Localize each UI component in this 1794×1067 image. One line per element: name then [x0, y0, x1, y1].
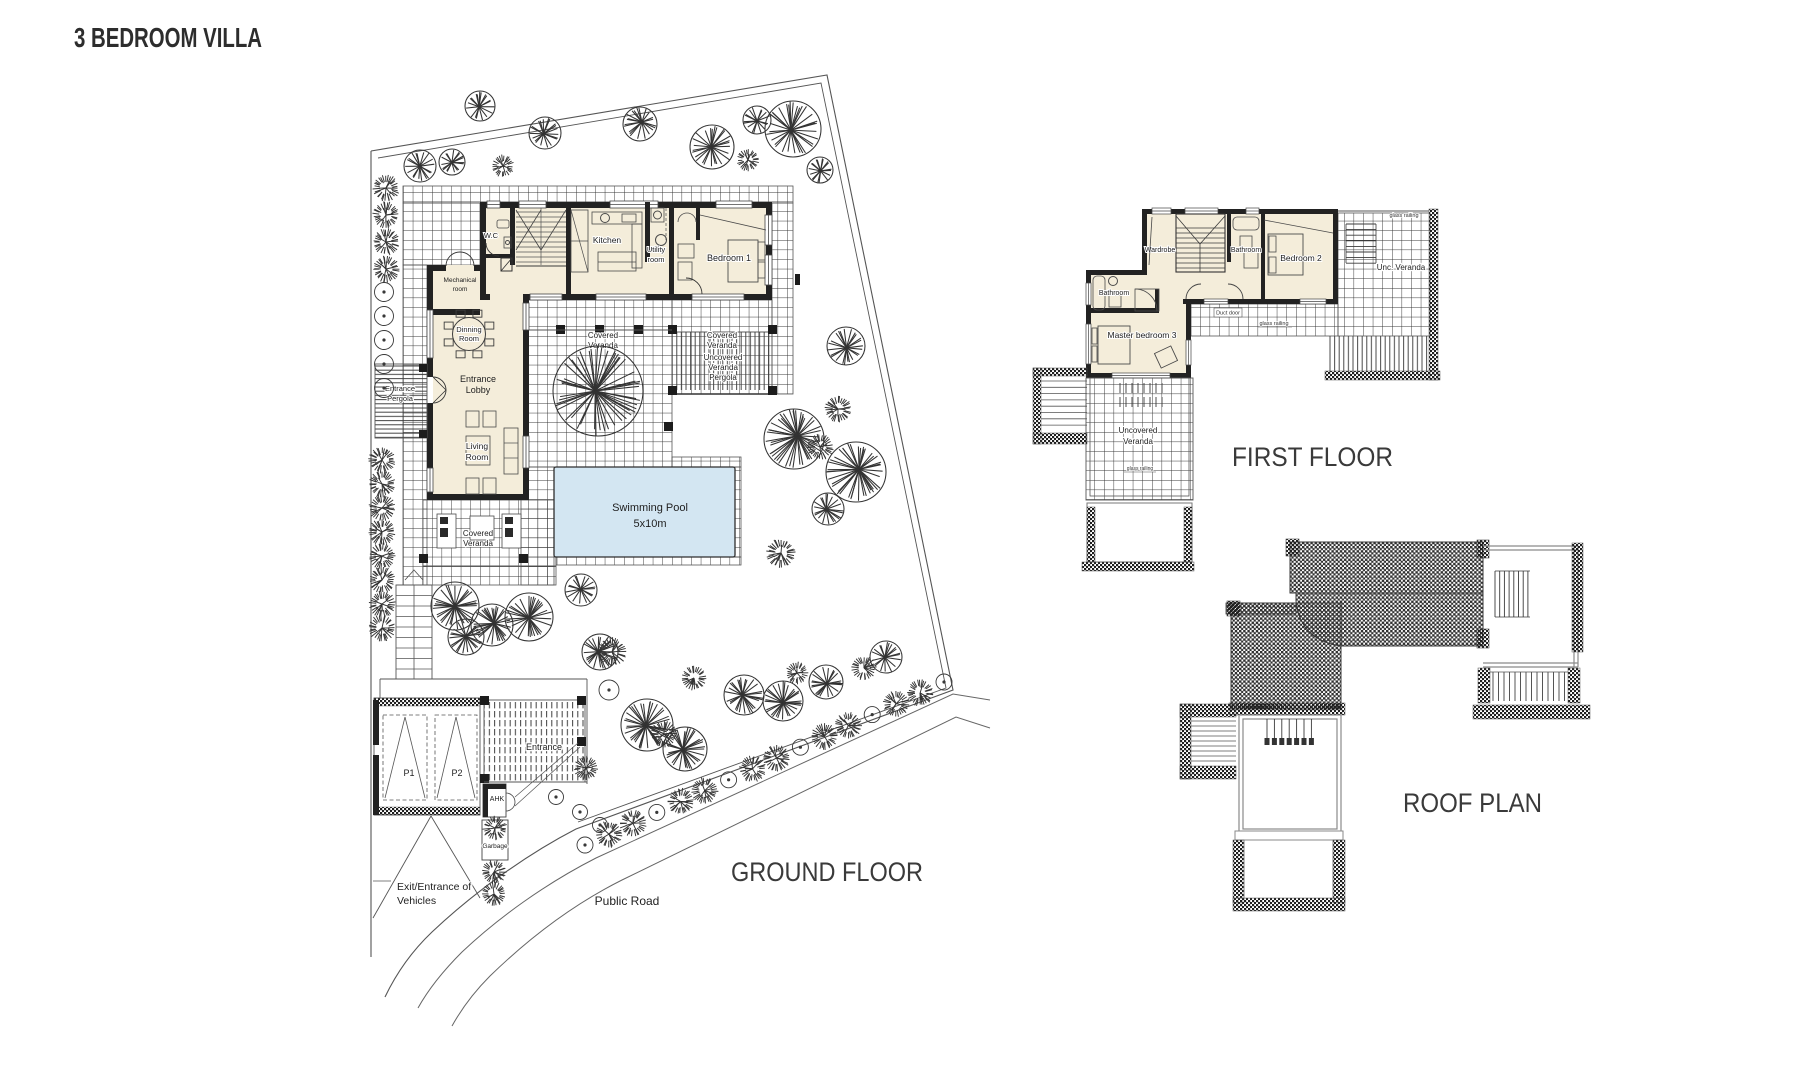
svg-text:Pergola: Pergola [387, 394, 414, 403]
svg-text:Uncovered: Uncovered [704, 353, 743, 362]
svg-text:Public Road: Public Road [595, 894, 660, 908]
svg-text:Utility: Utility [647, 245, 666, 254]
svg-text:Mechanical: Mechanical [444, 277, 477, 284]
svg-text:Veranda: Veranda [707, 341, 737, 350]
svg-text:Veranda: Veranda [463, 539, 493, 548]
svg-text:Covered: Covered [588, 331, 618, 340]
svg-text:Master bedroom 3: Master bedroom 3 [1108, 330, 1177, 340]
svg-text:Kitchen: Kitchen [593, 235, 622, 245]
svg-text:Bathroom: Bathroom [1231, 247, 1262, 254]
svg-text:Veranda: Veranda [1123, 437, 1153, 446]
svg-text:AHK: AHK [490, 796, 505, 803]
svg-text:Vehicles: Vehicles [397, 895, 436, 907]
svg-text:W.C: W.C [484, 231, 499, 240]
svg-text:P2: P2 [451, 768, 462, 778]
svg-text:glass railing: glass railing [1127, 466, 1154, 472]
svg-text:Lobby: Lobby [466, 385, 491, 395]
svg-text:Garbage: Garbage [482, 843, 508, 850]
svg-text:Bathroom: Bathroom [1099, 290, 1130, 297]
svg-text:glass railing: glass railing [1389, 213, 1418, 219]
svg-text:Covered: Covered [463, 529, 493, 538]
svg-text:Bedroom 1: Bedroom 1 [707, 253, 751, 263]
svg-text:room: room [647, 255, 664, 264]
svg-text:Dinning: Dinning [456, 325, 481, 334]
svg-text:Veranda: Veranda [708, 363, 738, 372]
svg-text:Entrance: Entrance [460, 374, 496, 384]
svg-text:room: room [453, 286, 468, 293]
svg-text:FIRST FLOOR: FIRST FLOOR [1232, 442, 1393, 472]
svg-text:Swimming Pool: Swimming Pool [612, 502, 688, 514]
svg-text:GROUND FLOOR: GROUND FLOOR [731, 857, 923, 887]
svg-text:Unc. Veranda: Unc. Veranda [1377, 263, 1426, 272]
svg-text:Wardrobe: Wardrobe [1145, 247, 1176, 254]
svg-text:Room: Room [459, 334, 479, 343]
svg-text:Bedroom 2: Bedroom 2 [1280, 253, 1322, 263]
svg-text:3 BEDROOM VILLA: 3 BEDROOM VILLA [74, 22, 262, 53]
svg-text:P1: P1 [403, 768, 414, 778]
svg-text:Living: Living [466, 441, 488, 451]
svg-text:Room: Room [466, 452, 489, 462]
svg-text:Duct door: Duct door [1216, 311, 1240, 317]
svg-text:Uncovered: Uncovered [1119, 426, 1158, 435]
svg-text:ROOF PLAN: ROOF PLAN [1403, 788, 1542, 818]
svg-text:5x10m: 5x10m [633, 518, 666, 530]
svg-text:Entrance: Entrance [526, 742, 562, 752]
svg-text:Pergola: Pergola [709, 373, 737, 382]
svg-text:glass railing: glass railing [1259, 321, 1288, 327]
svg-text:Covered: Covered [707, 331, 737, 340]
svg-text:Exit/Entrance of: Exit/Entrance of [397, 881, 471, 893]
svg-text:Entrance: Entrance [385, 384, 415, 393]
